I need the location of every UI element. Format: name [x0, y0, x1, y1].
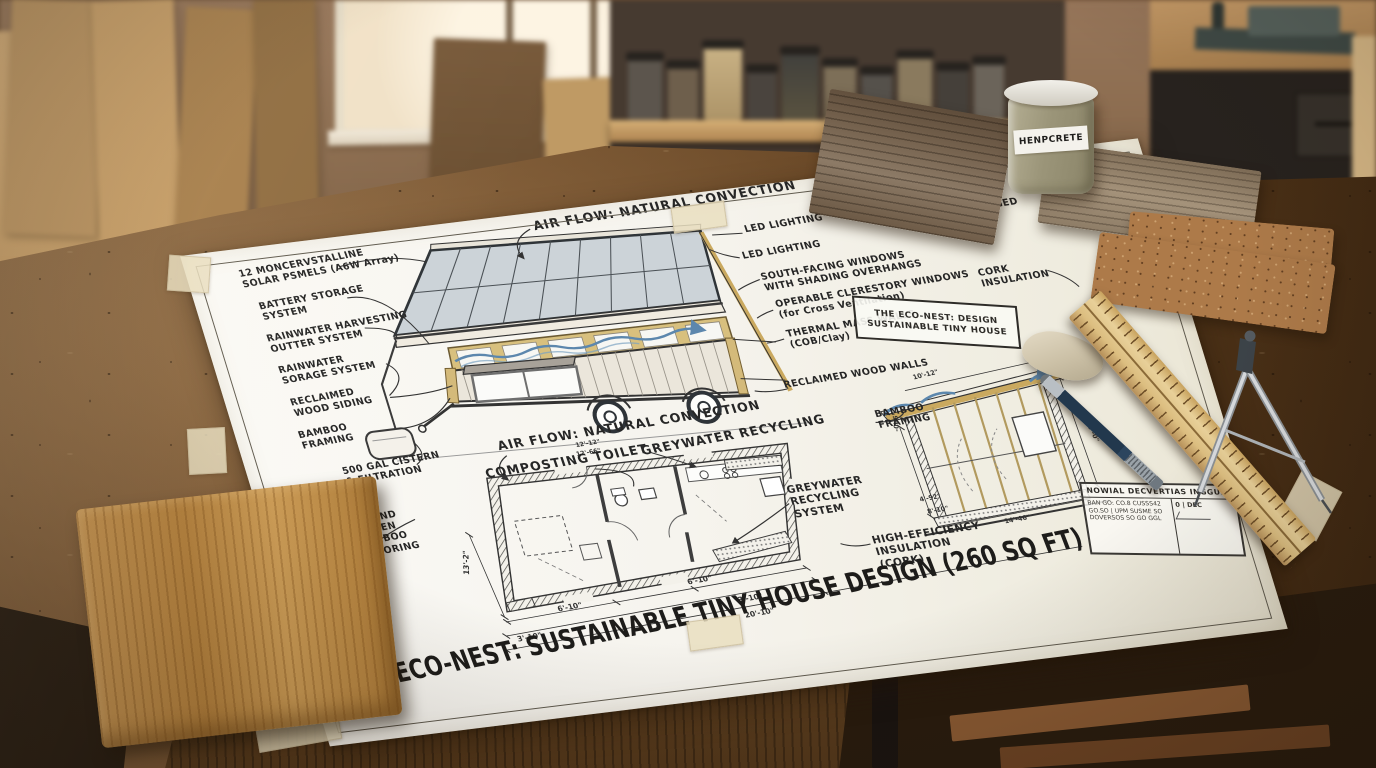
jar	[782, 46, 818, 120]
jar	[704, 40, 742, 120]
section-drawing	[871, 357, 1113, 536]
lumber-board	[92, 0, 183, 256]
scale-sketch	[1175, 512, 1213, 520]
jar	[668, 60, 698, 120]
hempcrete-jar-lid	[1004, 80, 1098, 106]
title-block-notes: BAN GO: CO.8 CUSSS42 GO.SO | UPM SUSME S…	[1084, 498, 1181, 554]
dim-text: 13'-2"	[461, 550, 471, 575]
bed-outline	[514, 515, 572, 556]
masking-tape	[167, 255, 211, 294]
title-block-note-3: DOVERSOS SO GO GGL	[1089, 514, 1171, 522]
vise-jaw	[1248, 6, 1340, 36]
fridge	[760, 477, 785, 497]
hempcrete-jar-label: HENPCRETE	[1013, 125, 1088, 154]
scale-text: 0 | DEC	[1175, 501, 1203, 509]
masking-tape	[187, 427, 227, 475]
sink	[639, 488, 657, 500]
downspout	[369, 340, 422, 429]
dim-text: 8'-10"	[926, 504, 950, 515]
lumber-board	[4, 0, 104, 237]
plan-partitions	[586, 465, 708, 587]
bamboo-flooring-sample	[75, 476, 402, 749]
jar	[748, 64, 776, 120]
workshop-photo: 6'-10" 3'-10" 6'-10" 3'-10" 20'-10" 13'-…	[0, 0, 1376, 768]
jar	[628, 52, 662, 120]
jar	[974, 56, 1004, 120]
